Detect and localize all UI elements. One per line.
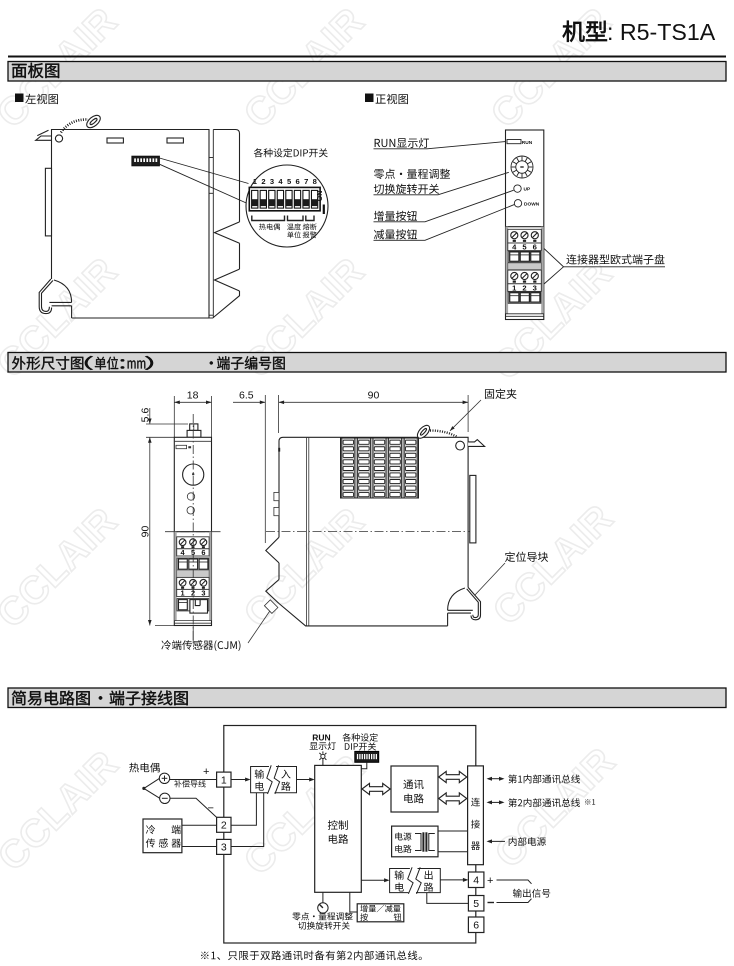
svg-text:+: + bbox=[203, 766, 209, 778]
svg-text:6: 6 bbox=[533, 243, 537, 252]
svg-text:5: 5 bbox=[473, 898, 479, 910]
svg-text:ON: ON bbox=[317, 191, 324, 202]
svg-text:8: 8 bbox=[313, 177, 317, 186]
svg-text:6: 6 bbox=[296, 177, 300, 186]
svg-text:2: 2 bbox=[261, 177, 265, 186]
svg-text:RUN: RUN bbox=[522, 140, 533, 146]
svg-text:6.5: 6.5 bbox=[239, 389, 254, 401]
svg-text:4: 4 bbox=[473, 875, 479, 887]
svg-text:DOWN: DOWN bbox=[524, 201, 540, 207]
svg-text:−: − bbox=[208, 803, 214, 815]
svg-text:3: 3 bbox=[533, 283, 537, 292]
svg-text:18: 18 bbox=[187, 389, 199, 401]
svg-text:6: 6 bbox=[201, 548, 205, 557]
svg-text:2: 2 bbox=[221, 820, 227, 832]
svg-text:7: 7 bbox=[304, 177, 308, 186]
svg-text:UP: UP bbox=[524, 187, 531, 193]
svg-text:90: 90 bbox=[368, 389, 380, 401]
svg-text:3: 3 bbox=[221, 842, 227, 854]
svg-text:1: 1 bbox=[221, 774, 227, 786]
svg-text:6: 6 bbox=[473, 920, 479, 932]
svg-text:RUN: RUN bbox=[312, 732, 330, 742]
svg-text:2: 2 bbox=[522, 283, 526, 292]
svg-text:3: 3 bbox=[201, 589, 205, 598]
svg-text:: R5-TS1A: : R5-TS1A bbox=[607, 19, 716, 45]
svg-text:3: 3 bbox=[270, 177, 274, 186]
svg-text:+: + bbox=[487, 875, 493, 887]
svg-text:1: 1 bbox=[181, 589, 185, 598]
